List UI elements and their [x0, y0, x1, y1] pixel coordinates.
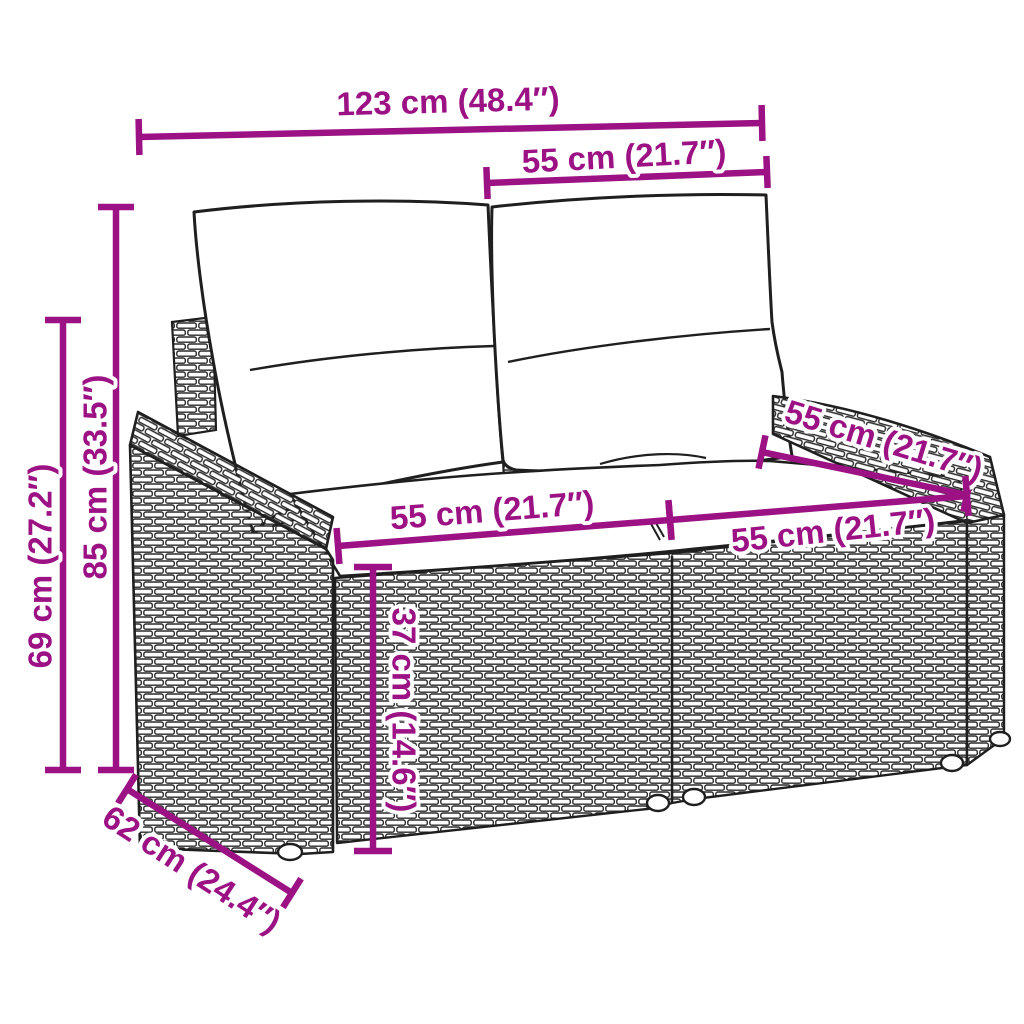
dimension-tick: [337, 528, 340, 564]
foot: [683, 789, 705, 805]
dimension-tick: [283, 879, 301, 908]
sofa-illustration: 123 cm (48.4″)55 cm (21.7″)85 cm (33.5″)…: [0, 0, 1024, 1024]
foot: [278, 844, 302, 860]
dimension-tick: [762, 105, 763, 141]
dimension-label-overall-width: 123 cm (48.4″): [336, 80, 560, 123]
right-back-pillow: [492, 195, 792, 472]
dimension-armrest-height: 69 cm (27.2″): [22, 320, 82, 770]
dimension-backrest-cushion-width: 55 cm (21.7″): [486, 132, 767, 199]
dimension-tick: [668, 500, 671, 540]
foot: [647, 795, 669, 811]
dimension-tick: [486, 167, 487, 199]
base-right-side-face: [967, 515, 1004, 765]
foot: [941, 755, 963, 771]
foot: [990, 732, 1010, 746]
dimension-overall-height: 85 cm (33.5″): [77, 207, 135, 770]
dimension-label-seat-height: 37 cm (14.6″): [386, 608, 423, 813]
product-dimension-diagram: 123 cm (48.4″)55 cm (21.7″)85 cm (33.5″)…: [0, 0, 1024, 1024]
dimension-tick: [766, 156, 767, 188]
dimension-label-armrest-height: 69 cm (27.2″): [22, 464, 59, 669]
dimension-tick: [139, 119, 140, 155]
dimension-label-overall-height: 85 cm (33.5″): [77, 375, 114, 580]
dimension-tick: [965, 476, 968, 516]
dimension-tick: [118, 775, 136, 804]
